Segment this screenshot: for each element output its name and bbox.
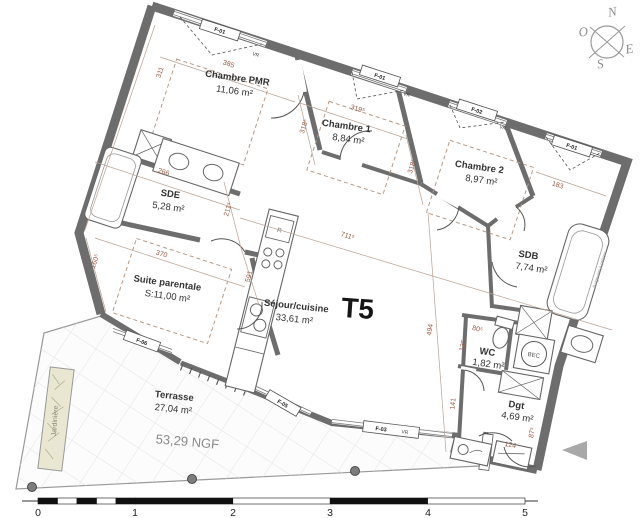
scale-tick: 1 [132, 507, 138, 518]
compass-n: N [606, 3, 619, 20]
scale-bar: 0 1 2 3 4 5 [22, 498, 538, 518]
terrace-post [188, 475, 197, 484]
vr-label: VR [401, 429, 409, 436]
unit-type-label: T5 [340, 292, 375, 325]
terrace-post [351, 467, 360, 476]
scale-tick: 3 [327, 507, 333, 518]
scale-tick: 0 [35, 507, 41, 518]
floor-plan-page: Jardinière [0, 0, 640, 518]
compass-o: O [577, 23, 589, 40]
scale-tick: 2 [230, 507, 236, 518]
dim: 141 [449, 398, 457, 410]
compass-e: E [623, 40, 634, 56]
scale-tick: 4 [425, 507, 431, 518]
terrace-post [28, 483, 37, 492]
compass-icon: N O E S [577, 3, 634, 71]
floor-plan-svg: Jardinière [0, 0, 640, 518]
washbasin [561, 325, 604, 362]
scale-tick: 5 [522, 507, 528, 518]
